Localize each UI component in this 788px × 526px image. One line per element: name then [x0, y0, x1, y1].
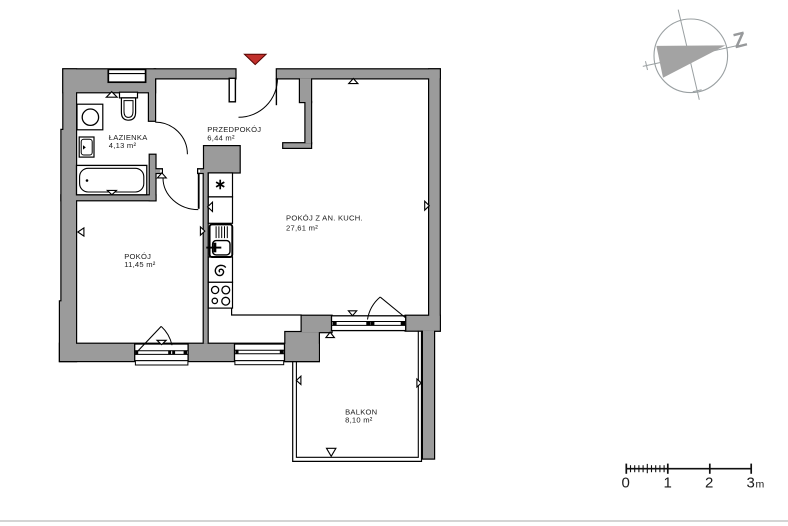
svg-text:27,61 m²: 27,61 m²	[286, 224, 318, 233]
svg-text:4,13 m²: 4,13 m²	[109, 141, 137, 150]
svg-text:m: m	[756, 479, 765, 491]
svg-text:POKÓJ Z AN. KUCH.: POKÓJ Z AN. KUCH.	[286, 213, 363, 222]
svg-text:11,45 m²: 11,45 m²	[124, 260, 156, 269]
svg-text:6,44 m²: 6,44 m²	[207, 133, 235, 142]
svg-text:8,10 m²: 8,10 m²	[345, 416, 373, 425]
svg-text:2: 2	[705, 475, 713, 492]
svg-text:0: 0	[622, 475, 630, 492]
svg-text:3: 3	[747, 475, 755, 492]
svg-text:1: 1	[664, 475, 672, 492]
